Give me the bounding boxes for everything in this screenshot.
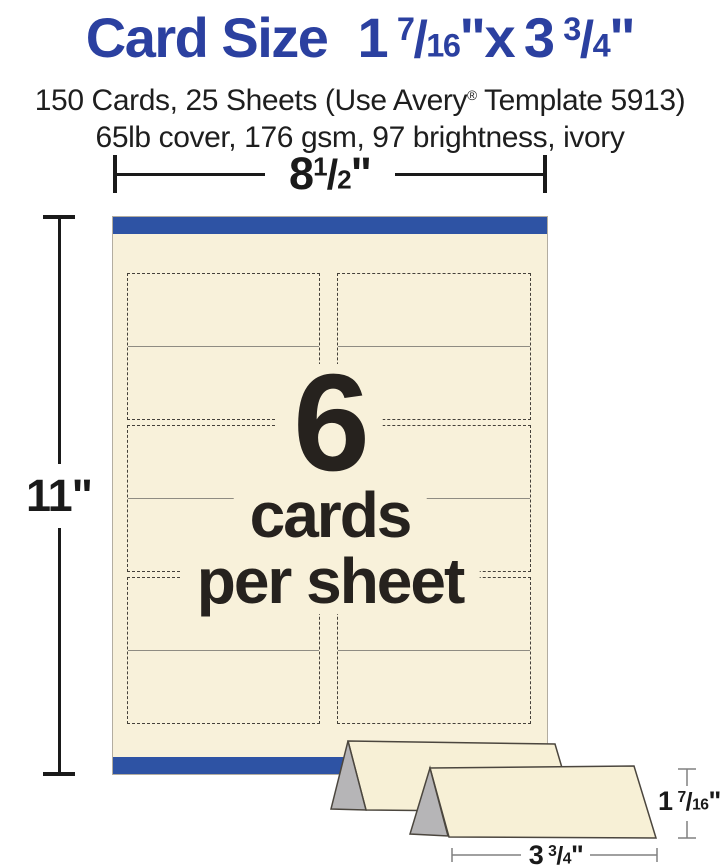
product-infographic: Card Size 1 7/16"x 3 3/4" 150 Cards, 25 …: [0, 0, 720, 868]
tent-card-front-face: [430, 766, 656, 838]
tent-cards-illustration: [0, 0, 720, 868]
card-width-label: 3 3/4": [521, 840, 591, 868]
card-height-label: 1 7/16": [658, 786, 720, 817]
